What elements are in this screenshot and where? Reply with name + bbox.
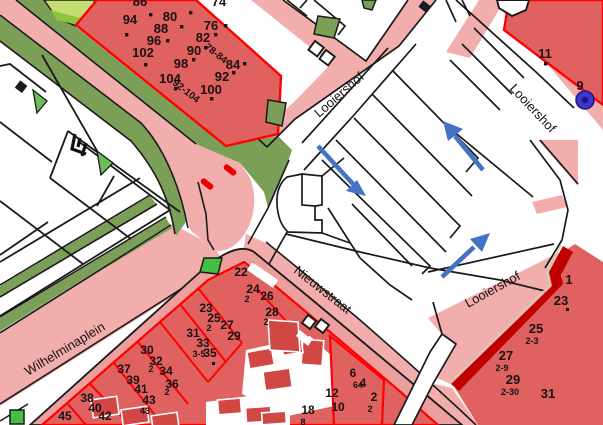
svg-text:22: 22: [234, 265, 248, 279]
svg-text:43: 43: [140, 406, 150, 416]
svg-text:102: 102: [132, 45, 154, 60]
svg-text:2-9: 2-9: [495, 363, 508, 373]
svg-text:10: 10: [331, 400, 345, 414]
svg-text:74: 74: [212, 0, 227, 9]
svg-text:2: 2: [244, 294, 249, 304]
svg-text:34: 34: [159, 364, 173, 378]
svg-text:2: 2: [371, 390, 378, 404]
svg-text:11: 11: [538, 46, 552, 61]
svg-text:90: 90: [187, 43, 201, 58]
svg-text:1: 1: [565, 272, 572, 287]
svg-text:8: 8: [300, 417, 305, 425]
svg-text:26: 26: [260, 289, 274, 303]
svg-text:94: 94: [123, 12, 138, 27]
svg-text:31: 31: [541, 386, 555, 401]
svg-text:25: 25: [529, 321, 543, 336]
svg-text:42: 42: [98, 409, 112, 423]
svg-text:2: 2: [367, 404, 372, 414]
svg-text:2-3: 2-3: [525, 336, 538, 346]
svg-text:3-5: 3-5: [192, 349, 205, 359]
svg-text:6: 6: [350, 366, 357, 380]
svg-text:2: 2: [206, 323, 211, 333]
svg-text:18: 18: [301, 403, 315, 417]
svg-text:29: 29: [506, 372, 520, 387]
svg-text:2: 2: [148, 364, 153, 374]
svg-text:64: 64: [353, 380, 363, 390]
svg-text:23: 23: [554, 293, 568, 308]
svg-text:45: 45: [58, 409, 72, 423]
svg-text:2: 2: [164, 387, 169, 397]
svg-text:43: 43: [142, 393, 156, 407]
svg-text:2: 2: [263, 317, 268, 327]
svg-text:9: 9: [576, 78, 583, 93]
svg-text:100: 100: [200, 82, 222, 97]
svg-text:12: 12: [325, 386, 339, 400]
svg-text:86: 86: [133, 0, 147, 9]
svg-text:27: 27: [499, 348, 513, 363]
svg-text:2-30: 2-30: [501, 387, 519, 397]
svg-text:29: 29: [227, 329, 241, 343]
svg-text:98: 98: [174, 56, 188, 71]
